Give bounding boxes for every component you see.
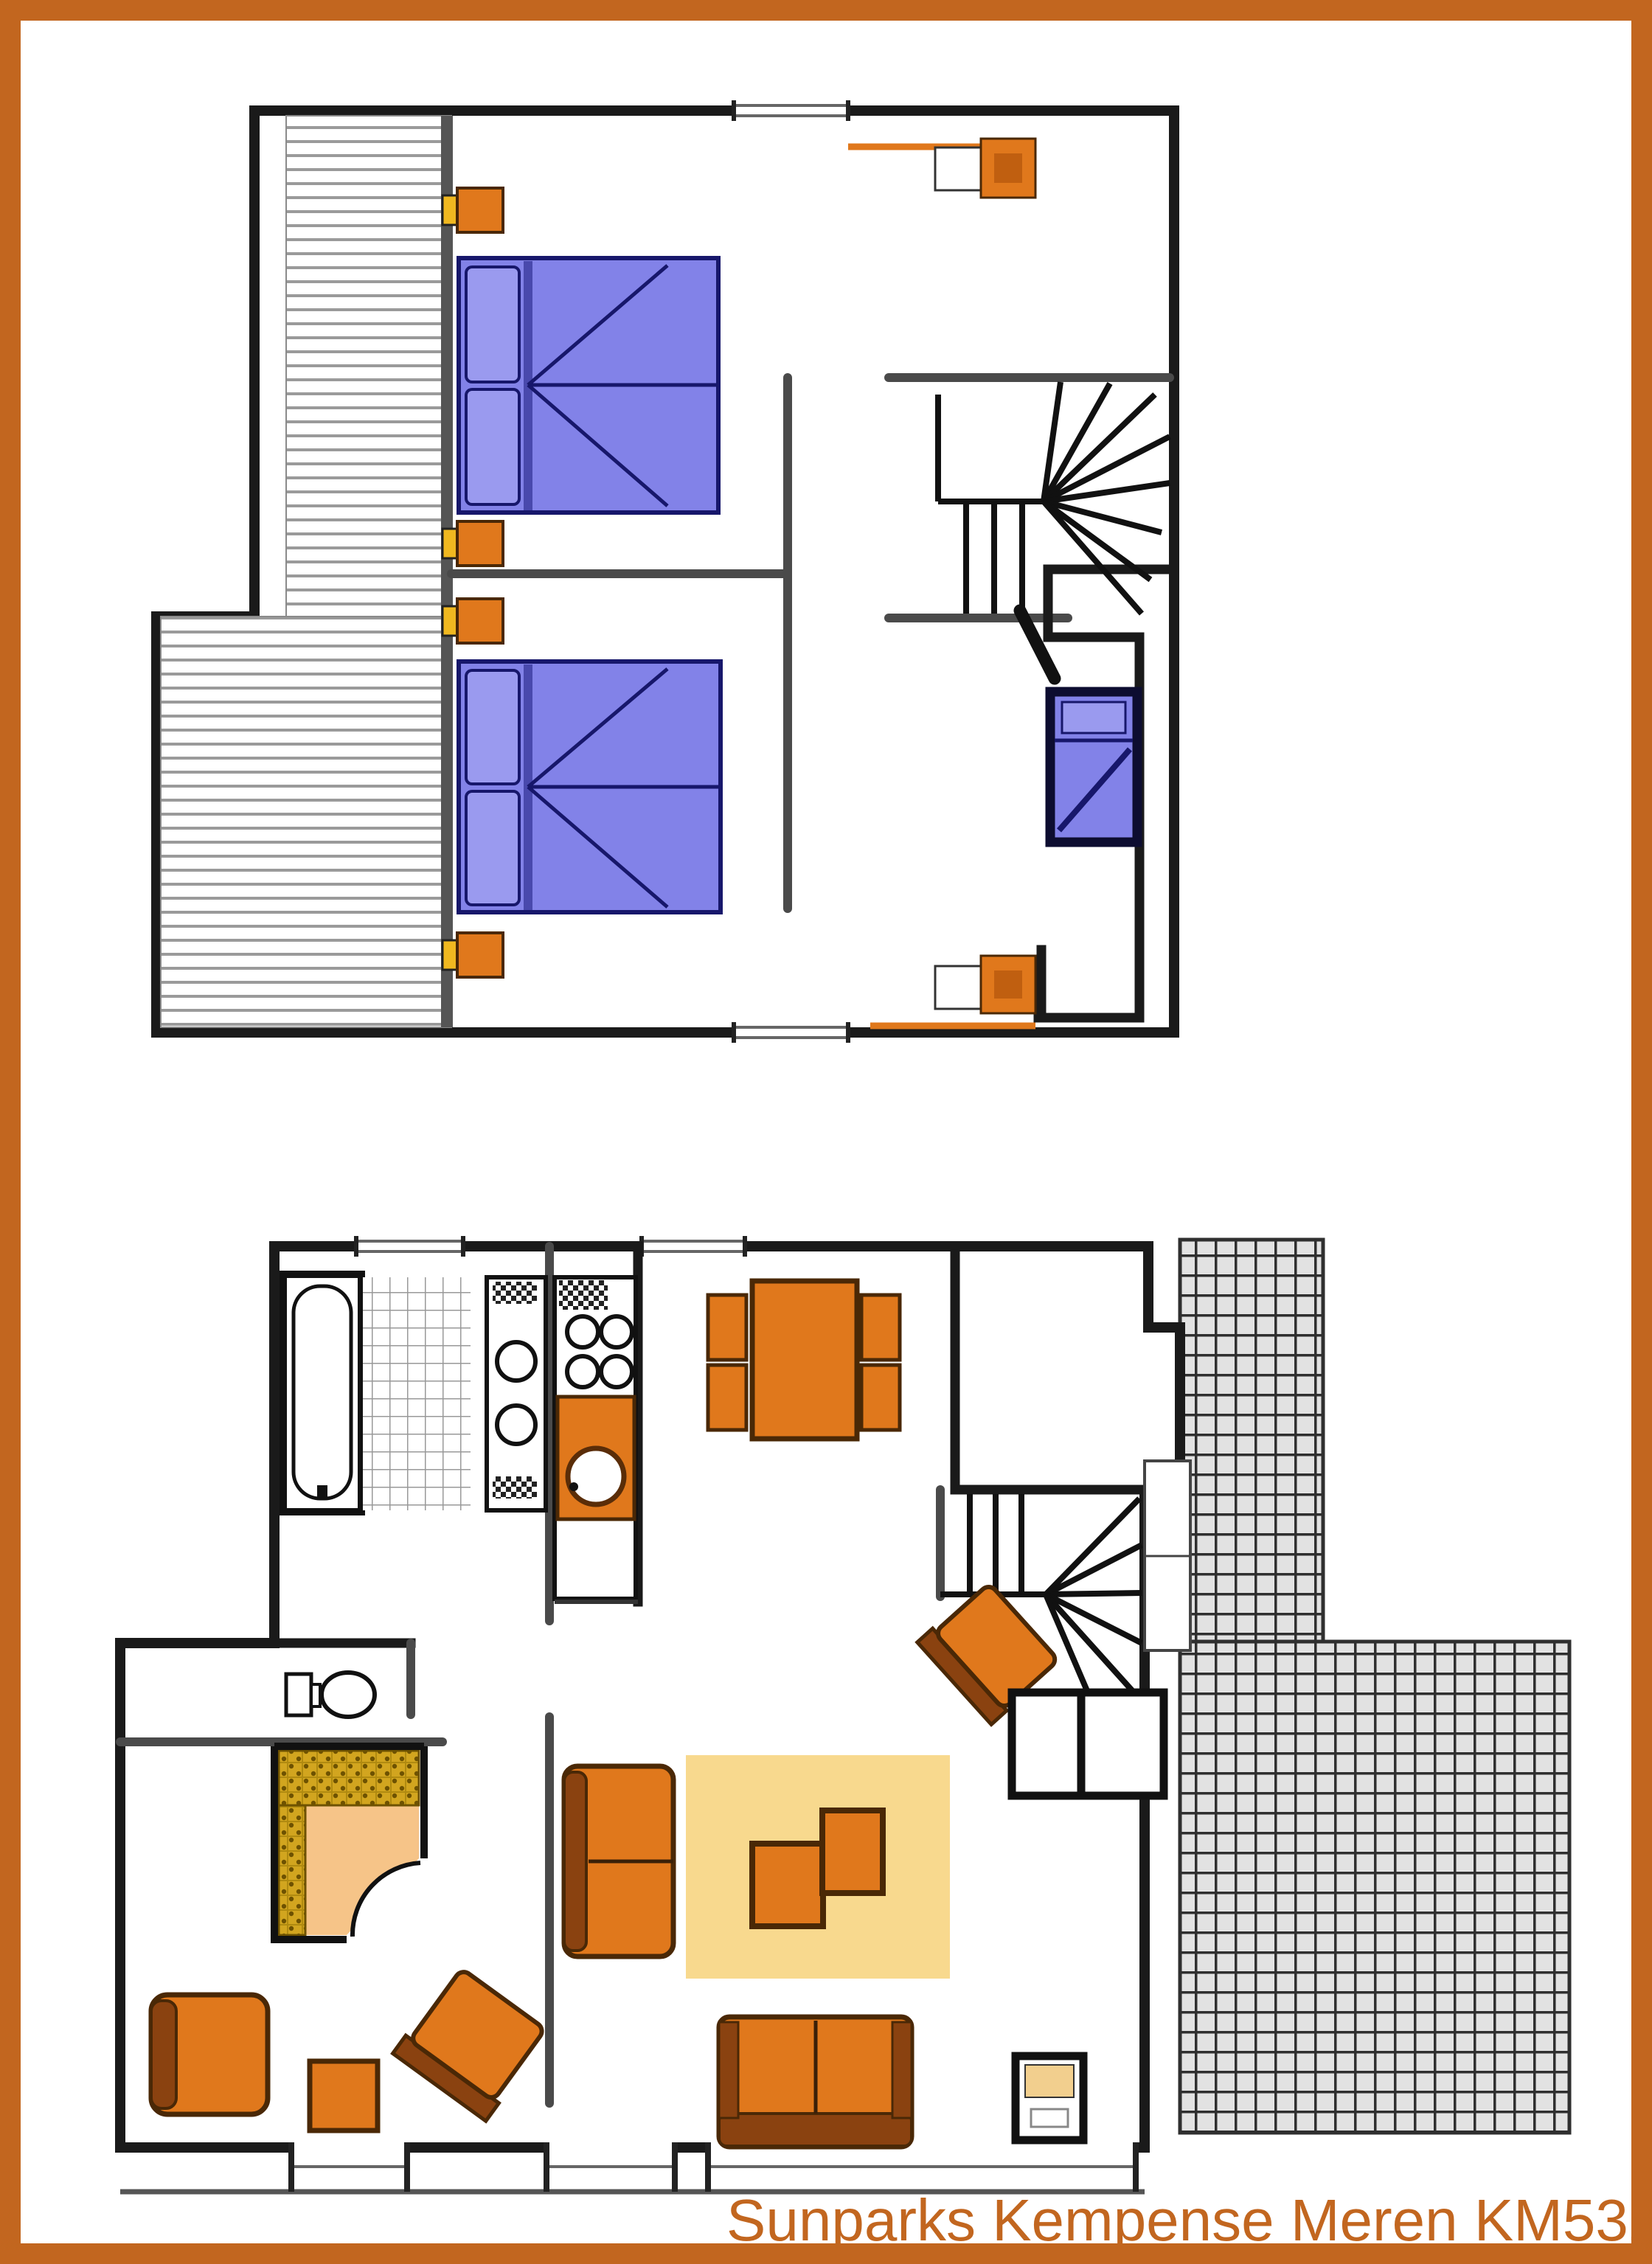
nightstand-lamp-3	[442, 599, 503, 643]
bathroom-tiled-floor	[363, 1277, 471, 1510]
double-bed-1	[459, 258, 718, 513]
plan-caption: Sunparks Kempense Meren KM532	[726, 2187, 1652, 2253]
nightstand-lamp-4	[442, 933, 503, 977]
ground-floor-plan	[120, 1236, 1569, 2192]
sloped-roof-hatch	[161, 116, 453, 1027]
loveseat	[564, 1766, 673, 1956]
bathroom	[283, 1274, 546, 1512]
floor-plan-page: Sunparks Kempense Meren KM532	[0, 0, 1652, 2264]
dining-chair	[708, 1365, 746, 1430]
upper-window-top	[734, 100, 848, 121]
upper-window-bottom	[734, 1022, 848, 1043]
kitchen-sink	[568, 1448, 624, 1504]
floor-plan-image: Sunparks Kempense Meren KM532	[0, 0, 1652, 2264]
ground-window-top-1	[356, 1236, 463, 1257]
kitchen	[555, 1277, 638, 1602]
terrace-tiles	[1180, 1240, 1569, 2133]
double-bed-2	[459, 662, 721, 912]
cot-bed	[1050, 692, 1137, 842]
ground-window-top-2	[642, 1236, 745, 1257]
dining-chair	[861, 1365, 900, 1430]
vanity-two-sinks	[487, 1277, 546, 1510]
dining-set	[708, 1281, 900, 1439]
upper-floor-plan	[156, 100, 1174, 1043]
nightstand-lamp-1	[442, 188, 503, 232]
nightstand-lamp-2	[442, 521, 503, 566]
dining-chair	[861, 1295, 900, 1360]
armchair	[151, 1995, 268, 2114]
hob-four-burners	[559, 1280, 608, 1310]
dining-table	[752, 1281, 857, 1439]
coffee-table-1	[752, 1844, 823, 1926]
tv-table	[1016, 2056, 1083, 2140]
side-stool	[310, 2061, 378, 2131]
dining-chair	[708, 1295, 746, 1360]
coffee-table-2	[822, 1810, 883, 1893]
sofa	[719, 2017, 912, 2147]
storage-cells	[1012, 1692, 1164, 1796]
toilet	[286, 1673, 375, 1717]
